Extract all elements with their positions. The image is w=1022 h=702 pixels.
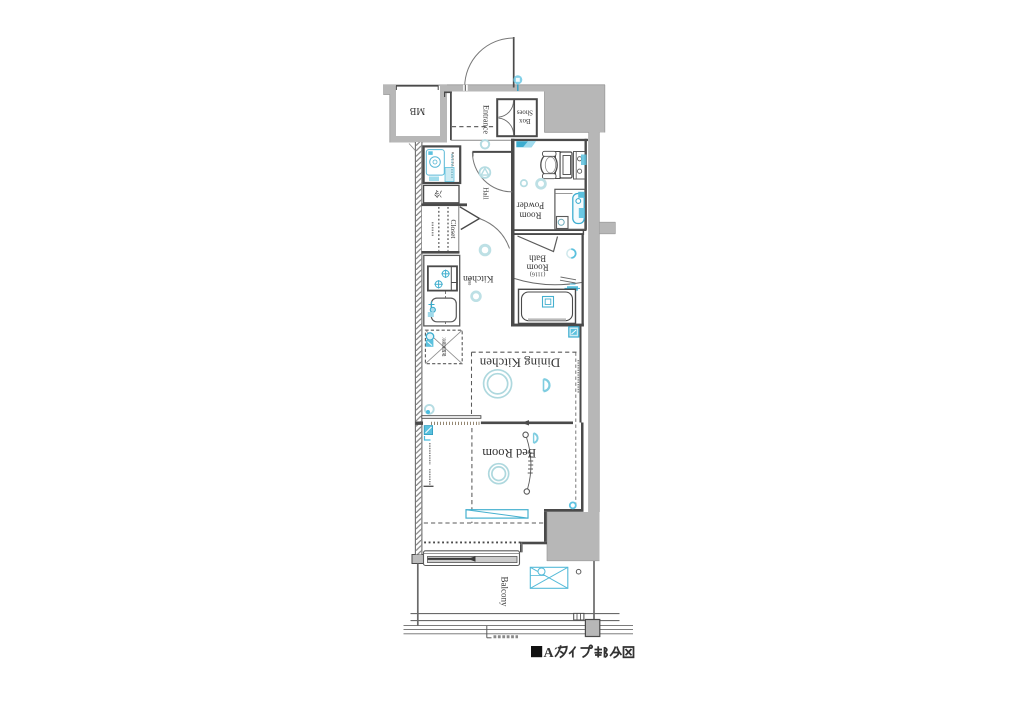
svg-text:Bath: Bath [529, 253, 546, 263]
svg-text:Shoes: Shoes [516, 108, 533, 115]
svg-text:冷: 冷 [434, 189, 442, 199]
svg-text:(1116): (1116) [530, 271, 546, 278]
svg-text:Entrance: Entrance [481, 105, 490, 134]
svg-text:Room: Room [519, 211, 541, 221]
svg-text:Box: Box [519, 117, 531, 124]
svg-text:Bed Room: Bed Room [482, 446, 536, 460]
svg-text:Balcony: Balcony [500, 577, 510, 607]
svg-text:冷蔵庫置場: 冷蔵庫置場 [442, 338, 447, 357]
svg-text:Hall: Hall [481, 187, 489, 199]
svg-text:A´: A´ [544, 646, 559, 661]
svg-text:Powder: Powder [517, 201, 545, 211]
svg-text:2590: 2590 [467, 277, 472, 285]
svg-text:Dining Kitchen: Dining Kitchen [479, 356, 560, 371]
svg-text:Closet: Closet [449, 220, 458, 240]
svg-text:MB: MB [409, 105, 425, 116]
